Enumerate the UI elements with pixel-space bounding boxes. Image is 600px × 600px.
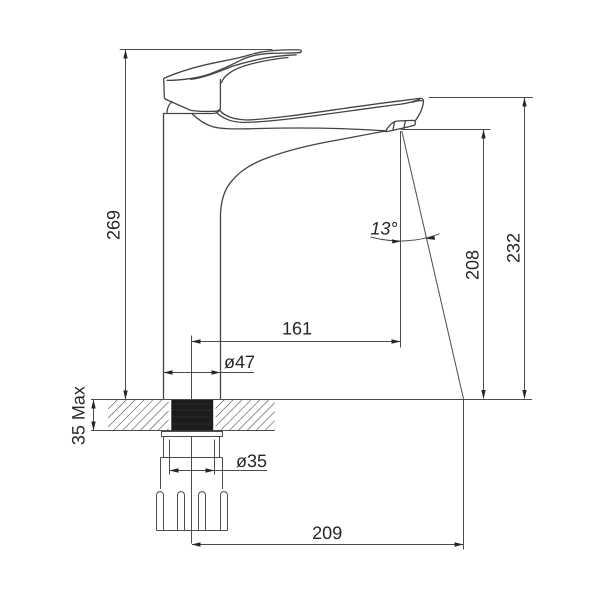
- svg-text:ø47: ø47: [224, 352, 255, 372]
- svg-text:13°: 13°: [370, 218, 397, 238]
- svg-text:208: 208: [462, 250, 482, 280]
- svg-text:ø35: ø35: [236, 451, 267, 471]
- svg-text:209: 209: [312, 523, 342, 543]
- svg-text:269: 269: [103, 210, 123, 240]
- svg-text:35 Max: 35 Max: [69, 386, 89, 445]
- svg-text:161: 161: [282, 318, 312, 338]
- svg-text:232: 232: [504, 233, 524, 263]
